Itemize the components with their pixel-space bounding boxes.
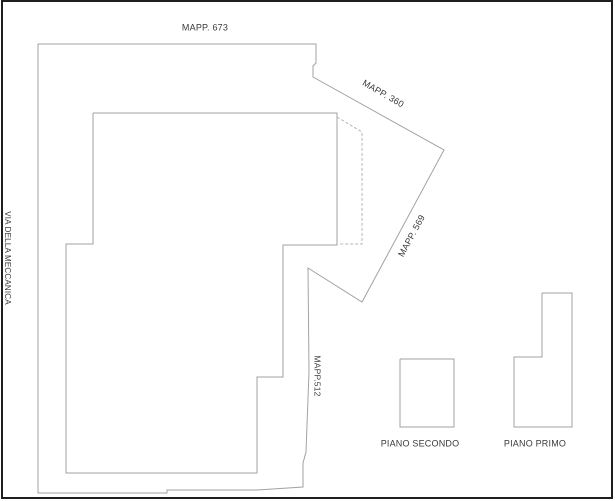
label-mapp-512: MAPP.512 bbox=[313, 355, 322, 396]
site-plan-page: MAPP. 673 MAPP. 360 MAPP. 569 MAPP.512 V… bbox=[0, 0, 615, 501]
label-street: VIA DELLA MECCANICA bbox=[3, 211, 11, 305]
label-piano-secondo: PIANO SECONDO bbox=[381, 440, 460, 449]
site-plan-drawing bbox=[0, 0, 615, 501]
label-piano-primo: PIANO PRIMO bbox=[504, 440, 566, 449]
piano-secondo-outline bbox=[400, 359, 454, 427]
piano-primo-outline bbox=[514, 293, 572, 427]
parcel-boundary-outline bbox=[38, 44, 444, 493]
label-mapp-673: MAPP. 673 bbox=[182, 24, 228, 33]
building-dashed-extension-outline bbox=[337, 117, 362, 244]
building-outline bbox=[66, 113, 337, 473]
